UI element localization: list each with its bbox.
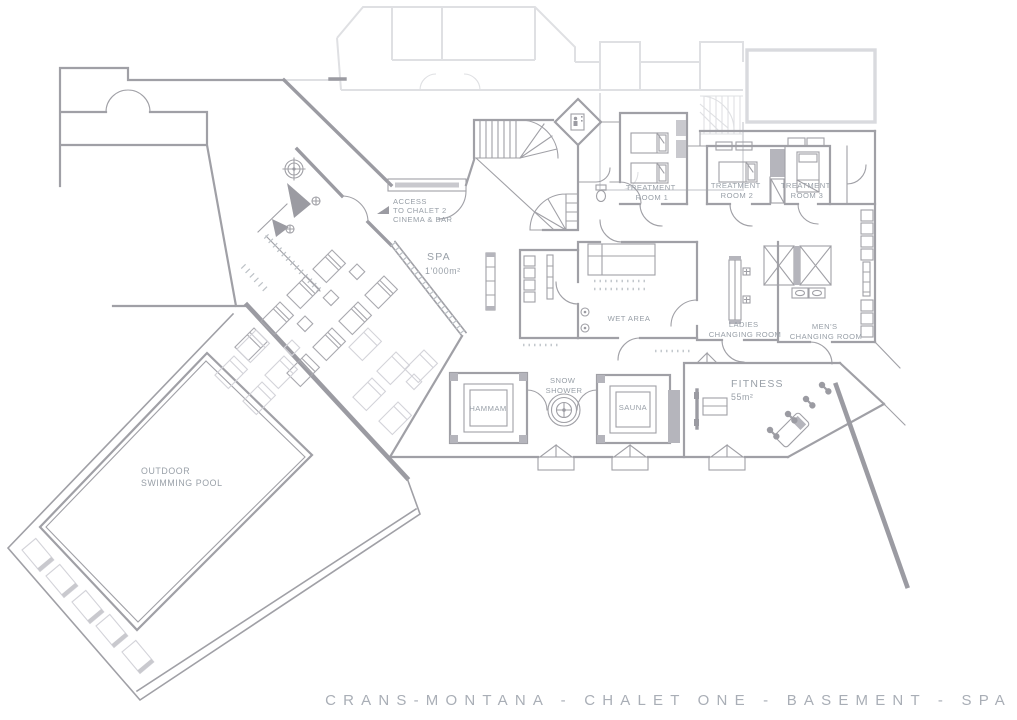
fitness-label: FITNESS: [731, 378, 784, 390]
wet-area-label: WET AREA: [608, 314, 651, 323]
floor-plan-page: ACCESS TO CHALET 2 CINEMA & BAR SPA 1'00…: [0, 0, 1017, 720]
sauna-label: SAUNA: [619, 403, 648, 412]
spa-area-label: 1'000m²: [425, 266, 461, 276]
fitness-area-label: 55m²: [731, 392, 753, 402]
snow-shower-label: SNOW SHOWER: [546, 376, 583, 395]
spa-label: SPA: [427, 251, 451, 263]
floor-plan: ACCESS TO CHALET 2 CINEMA & BAR SPA 1'00…: [0, 0, 1017, 720]
hammam-label: HAMMAM: [469, 404, 506, 413]
plan-caption: CRANS-MONTANA - CHALET ONE - BASEMENT - …: [325, 692, 1012, 709]
background: [0, 0, 1017, 720]
